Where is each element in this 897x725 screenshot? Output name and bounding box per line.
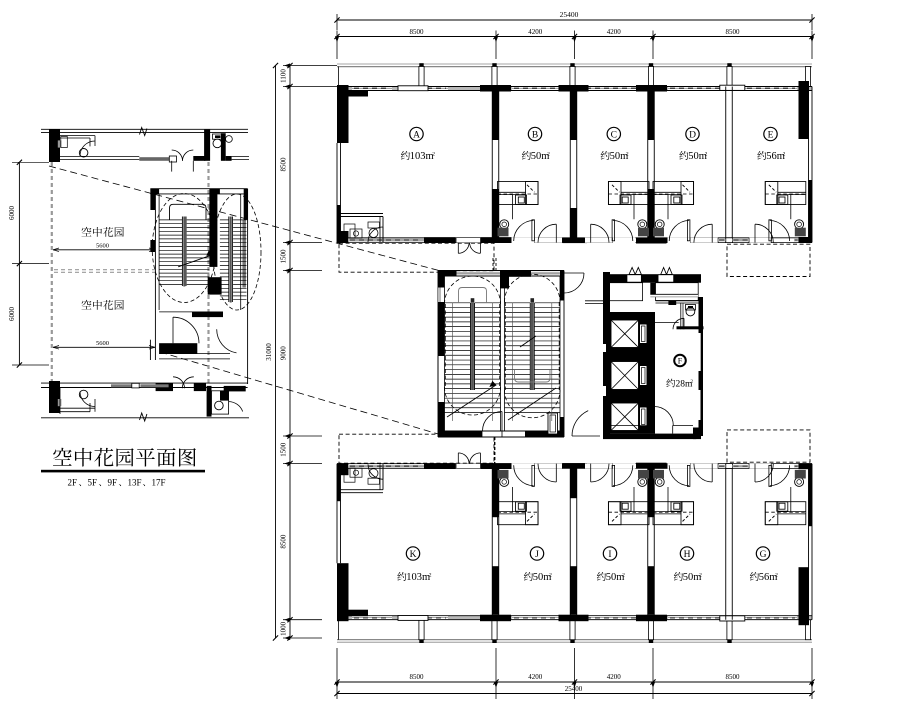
svg-text:2: 2 — [547, 152, 550, 158]
svg-text:1100: 1100 — [280, 69, 288, 83]
svg-text:4200: 4200 — [607, 28, 622, 36]
svg-text:31000: 31000 — [265, 343, 273, 361]
svg-text:2: 2 — [705, 152, 708, 158]
svg-text:F: F — [678, 356, 683, 365]
svg-text:5F: 5F — [88, 478, 98, 488]
svg-text:6000: 6000 — [8, 307, 16, 322]
svg-text:2: 2 — [626, 152, 629, 158]
svg-text:1500: 1500 — [280, 442, 288, 457]
svg-text:D: D — [689, 130, 696, 140]
svg-text:8500: 8500 — [280, 157, 288, 172]
svg-text:9000: 9000 — [280, 346, 288, 361]
svg-text:6000: 6000 — [8, 206, 16, 221]
svg-text:25400: 25400 — [565, 685, 583, 693]
svg-text:H: H — [684, 550, 691, 560]
svg-text:1000: 1000 — [280, 621, 288, 636]
svg-text:2: 2 — [429, 573, 432, 579]
svg-text:1500: 1500 — [280, 249, 288, 264]
svg-text:2: 2 — [783, 152, 786, 158]
svg-text:25400: 25400 — [560, 10, 579, 19]
svg-text:G: G — [760, 550, 767, 560]
svg-text:E: E — [768, 130, 774, 140]
svg-text:8500: 8500 — [280, 534, 288, 549]
svg-text:103m: 103m — [410, 151, 434, 162]
svg-text:4200: 4200 — [528, 28, 543, 36]
svg-text:17F: 17F — [152, 478, 166, 488]
svg-text:8500: 8500 — [410, 673, 425, 681]
svg-text:2F: 2F — [68, 478, 78, 488]
svg-text:8500: 8500 — [410, 28, 425, 36]
svg-text:5600: 5600 — [96, 242, 109, 249]
svg-text:I: I — [608, 550, 611, 560]
svg-text:4200: 4200 — [528, 673, 543, 681]
svg-text:9F: 9F — [108, 478, 118, 488]
svg-text:8500: 8500 — [726, 673, 741, 681]
svg-text:B: B — [532, 130, 538, 140]
svg-text:4200: 4200 — [607, 673, 622, 681]
svg-text:A: A — [413, 130, 420, 140]
svg-text:J: J — [535, 550, 539, 560]
svg-text:13F: 13F — [128, 478, 142, 488]
svg-text:C: C — [611, 130, 617, 140]
svg-text:5600: 5600 — [96, 340, 109, 347]
svg-text:103m: 103m — [406, 572, 430, 583]
svg-text:2: 2 — [549, 573, 552, 579]
svg-text:2: 2 — [775, 573, 778, 579]
svg-text:2: 2 — [699, 573, 702, 579]
svg-text:8500: 8500 — [726, 28, 741, 36]
svg-text:K: K — [410, 550, 417, 560]
svg-text:2: 2 — [622, 573, 625, 579]
svg-text:2: 2 — [432, 152, 435, 158]
